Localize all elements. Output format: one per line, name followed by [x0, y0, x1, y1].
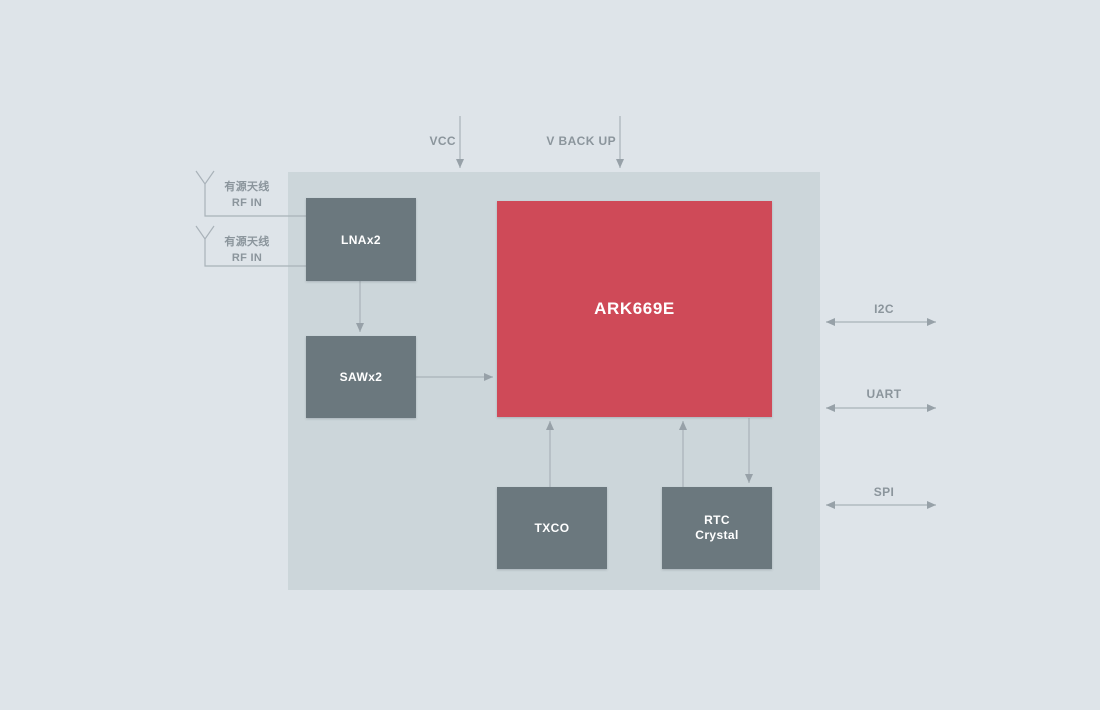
lna-block: LNAx2 [306, 198, 416, 281]
antenna-input-label: 有源天线 RF IN [214, 234, 280, 266]
saw-block: SAWx2 [306, 336, 416, 418]
vbackup-label: V BACK UP [520, 134, 616, 148]
uart-label: UART [834, 387, 934, 401]
antenna-label-line1: 有源天线 [214, 234, 280, 250]
antenna-input-label: 有源天线 RF IN [214, 179, 280, 211]
vcc-label: VCC [408, 134, 456, 148]
block-diagram: LNAx2 SAWx2 ARK669E TXCO RTC Crystal VCC… [0, 0, 1100, 710]
i2c-label: I2C [834, 302, 934, 316]
antenna-label-line2: RF IN [214, 195, 280, 211]
rtc-crystal-block: RTC Crystal [662, 487, 772, 569]
rtc-label-line2: Crystal [695, 528, 739, 543]
spi-label: SPI [834, 485, 934, 499]
chip-block: ARK669E [497, 201, 772, 417]
txco-block: TXCO [497, 487, 607, 569]
antenna-label-line1: 有源天线 [214, 179, 280, 195]
rtc-label-line1: RTC [695, 513, 739, 528]
antenna-label-line2: RF IN [214, 250, 280, 266]
